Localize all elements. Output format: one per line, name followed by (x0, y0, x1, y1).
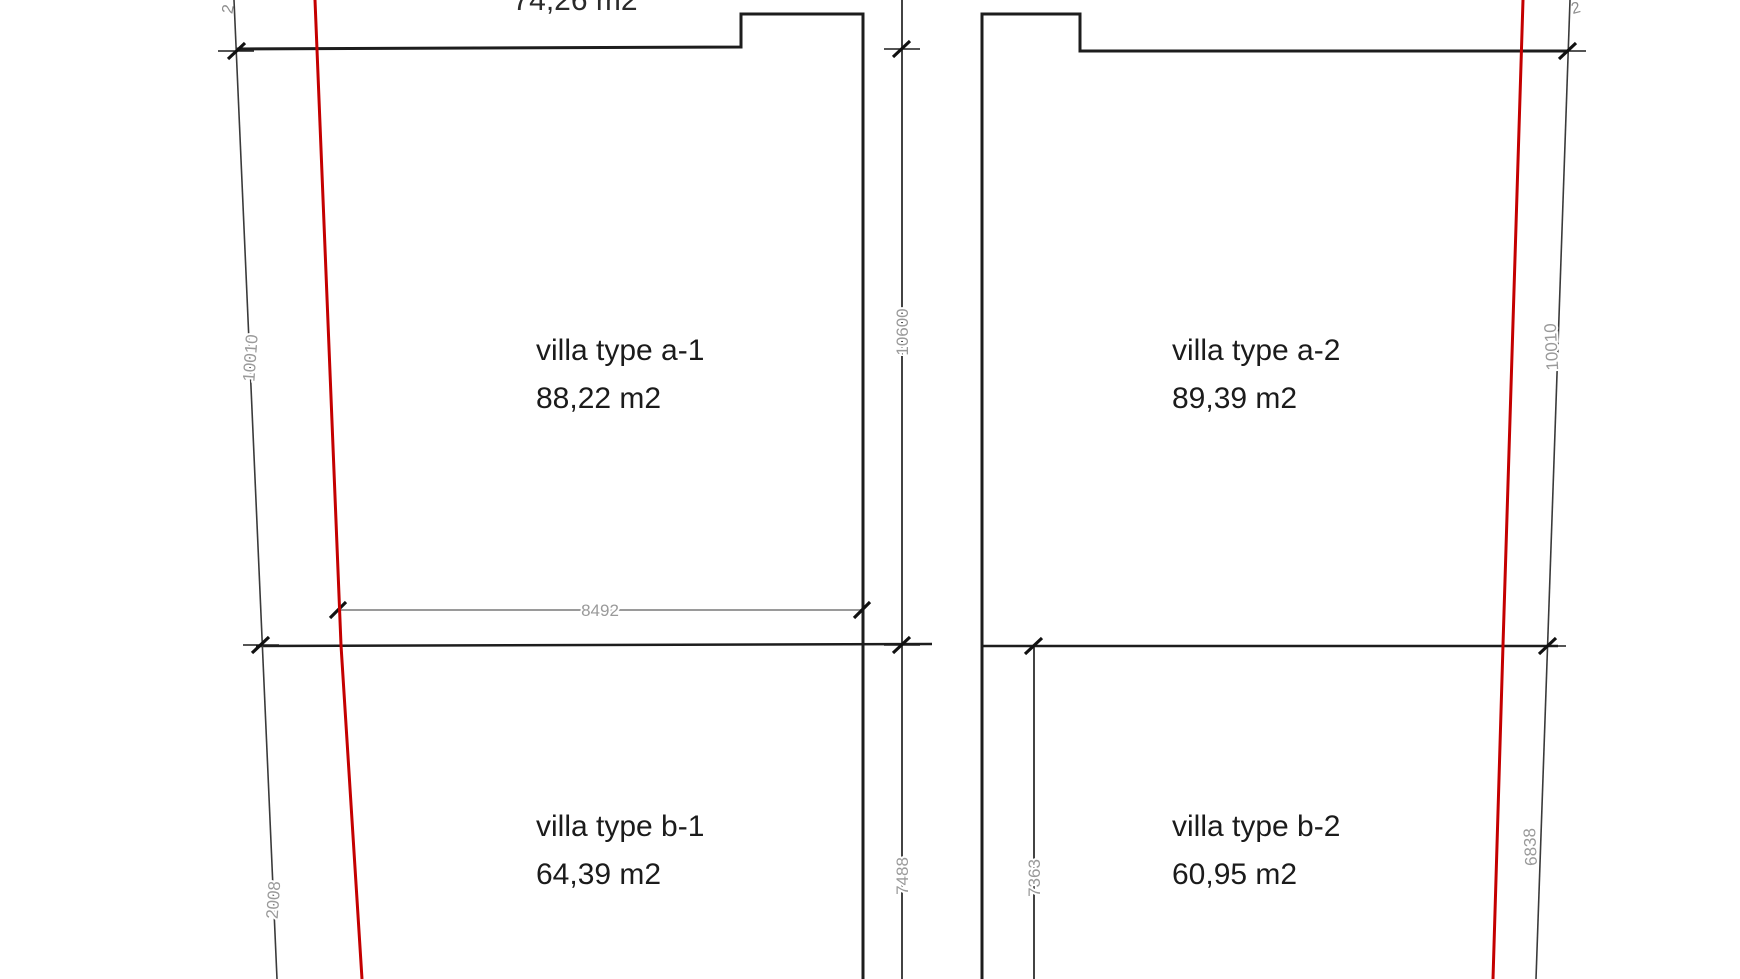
dim-label-lower-left-height: 7363 (1025, 859, 1044, 897)
left-plot-split-line (256, 644, 932, 646)
villa-b1-name: villa type b-1 (536, 810, 704, 843)
site-plan-canvas: 10010 2008 10600 7488 8492 7363 (0, 0, 1740, 979)
red-boundary-line-left (315, 0, 362, 979)
top-right-partial-label: 2 (1569, 0, 1582, 18)
villa-b2-area: 60,95 m2 (1172, 858, 1297, 891)
left-plot-height-dimension: 10600 7488 (884, 0, 920, 979)
dim-label-upper-width: 8492 (581, 601, 619, 620)
dim-label-left-lower: 2008 (263, 881, 285, 920)
top-area-label-clipped: 74,26 m2 (512, 0, 637, 17)
left-boundary-dimension: 10010 2008 (218, 0, 284, 979)
right-boundary-line (1536, 0, 1570, 979)
unit-labels: villa type a-1 88,22 m2 villa type b-1 6… (536, 334, 1340, 891)
villa-a2-name: villa type a-2 (1172, 334, 1340, 367)
dim-label-right-upper-height: 10600 (893, 308, 912, 355)
left-plot-width-dimension: 8492 (330, 601, 870, 620)
villa-a2-area: 89,39 m2 (1172, 382, 1297, 415)
right-plot-lower-left-dimension: 7363 (1016, 638, 1052, 979)
villa-b1-area: 64,39 m2 (536, 858, 661, 891)
site-plan-drawing: 10010 2008 10600 7488 8492 7363 (0, 0, 1740, 979)
villa-b2-name: villa type b-2 (1172, 810, 1340, 843)
red-boundary-line-right (1493, 0, 1523, 979)
villa-a1-area: 88,22 m2 (536, 382, 661, 415)
dim-label-right-boundary-upper: 10010 (1541, 323, 1562, 371)
villa-a1-name: villa type a-1 (536, 334, 704, 367)
dim-label-right-boundary-lower: 6838 (1520, 828, 1541, 867)
left-boundary-line (234, 0, 277, 979)
dim-label-right-lower-height: 7488 (893, 857, 912, 895)
right-boundary-dimension: 10010 6838 (1520, 0, 1586, 979)
dim-label-left-upper: 10010 (239, 334, 261, 382)
